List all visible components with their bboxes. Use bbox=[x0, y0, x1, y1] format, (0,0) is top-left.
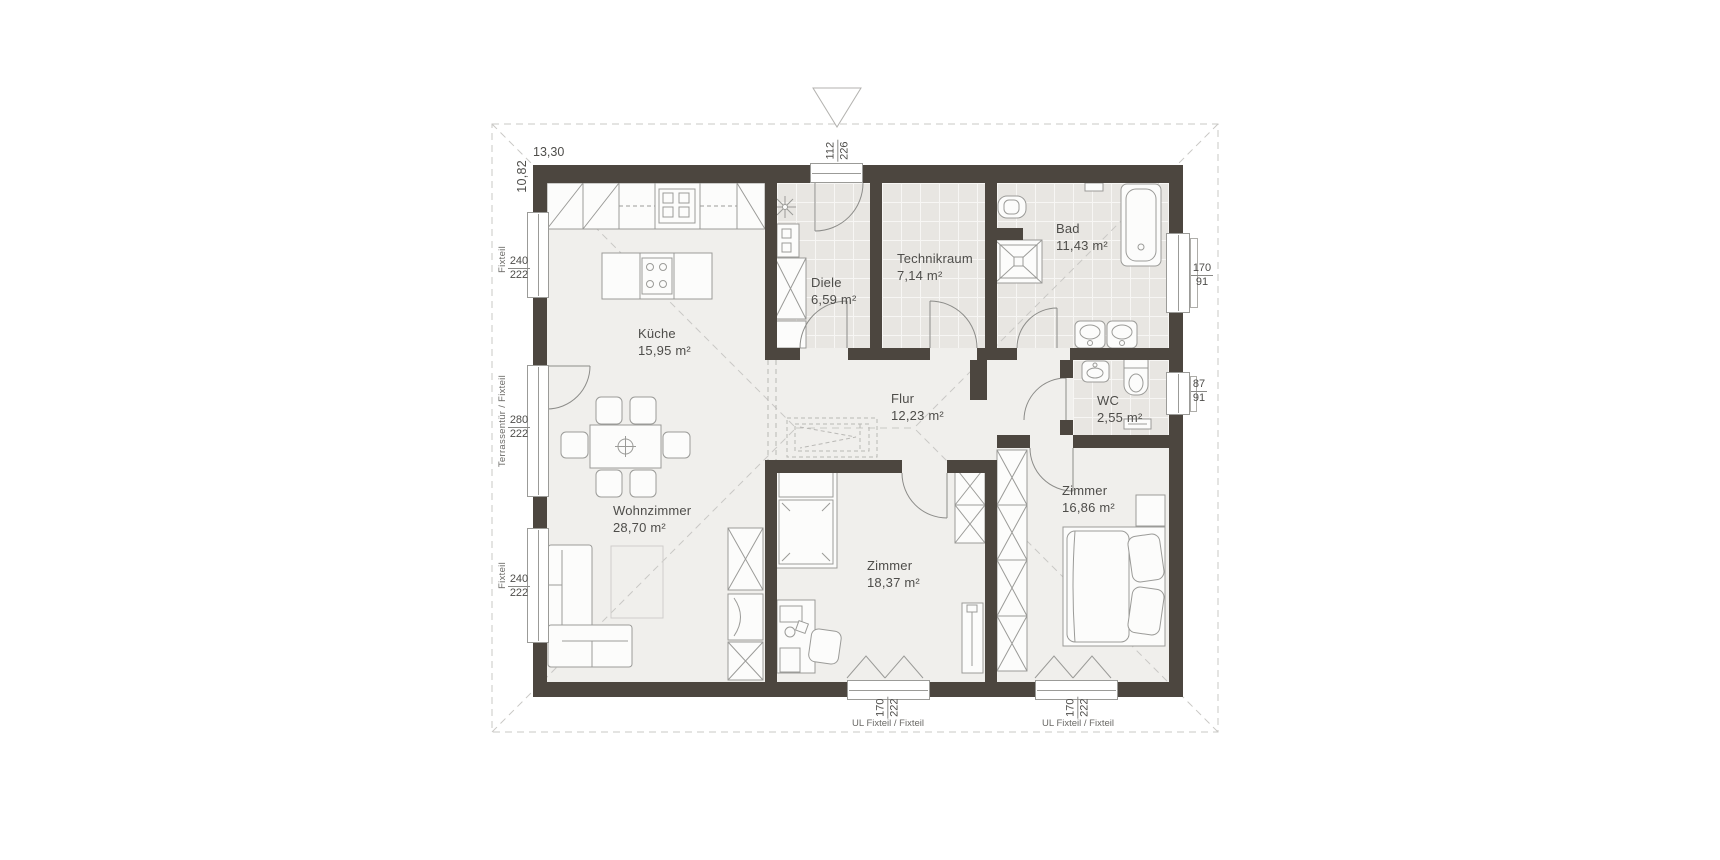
room-label-wc: WC 2,55 m² bbox=[1097, 393, 1142, 426]
double-bed bbox=[1063, 527, 1165, 646]
technikraum-door-swing bbox=[930, 301, 977, 348]
wall bbox=[765, 183, 777, 360]
room-area: 12,23 m² bbox=[891, 408, 944, 425]
room-area: 11,43 m² bbox=[1056, 238, 1108, 255]
room-label-flur: Flur 12,23 m² bbox=[891, 391, 944, 424]
dim-total-depth: 10,82 bbox=[515, 160, 529, 193]
dim-height: 222 bbox=[504, 269, 534, 282]
kitchen-counter bbox=[547, 183, 765, 229]
room-label-wohnzimmer: Wohnzimmer 28,70 m² bbox=[613, 503, 691, 536]
desk bbox=[777, 600, 815, 673]
shoe-cabinet bbox=[777, 224, 799, 257]
bath-shelf bbox=[1085, 183, 1103, 191]
wall bbox=[977, 348, 1017, 360]
room-label-zimmer-18: Zimmer 18,37 m² bbox=[867, 558, 920, 591]
room-name: Zimmer bbox=[867, 558, 920, 575]
shower bbox=[995, 240, 1042, 283]
room-area: 2,55 m² bbox=[1097, 410, 1142, 427]
zimmer16-wardrobe bbox=[997, 450, 1027, 671]
dim-height: 222 bbox=[504, 428, 534, 441]
wall bbox=[997, 228, 1023, 240]
window-type-label: UL Fixteil / Fixteil bbox=[1023, 718, 1133, 729]
zimmer18-door-swing bbox=[902, 473, 947, 518]
dim-width: 240 bbox=[508, 573, 530, 587]
terrace-door-swing bbox=[547, 366, 590, 409]
wall bbox=[930, 682, 1035, 697]
room-area: 15,95 m² bbox=[638, 343, 691, 360]
dim-height: 226 bbox=[839, 136, 852, 166]
wall bbox=[1169, 183, 1183, 233]
wall bbox=[870, 183, 882, 348]
room-label-diele: Diele 6,59 m² bbox=[811, 275, 856, 308]
wall bbox=[533, 183, 547, 212]
desk-chair bbox=[808, 628, 842, 665]
wall bbox=[1118, 682, 1183, 697]
entry-door-opening bbox=[810, 163, 863, 183]
room-name: WC bbox=[1097, 393, 1142, 410]
wall bbox=[1070, 348, 1183, 360]
single-bed bbox=[775, 468, 837, 568]
dim-entry-door: 112 226 bbox=[824, 136, 851, 166]
room-name: Wohnzimmer bbox=[613, 503, 691, 520]
room-name: Technikraum bbox=[897, 251, 973, 268]
wall bbox=[863, 165, 1183, 183]
wall bbox=[765, 460, 902, 473]
zimmer18-wardrobe bbox=[955, 467, 985, 543]
wall bbox=[1060, 360, 1073, 378]
wc-sink bbox=[1082, 361, 1109, 382]
double-washbasin bbox=[1075, 321, 1137, 348]
wall bbox=[533, 298, 547, 365]
living-wall-units bbox=[728, 528, 763, 680]
dining-table-set bbox=[561, 397, 690, 497]
dim-width: 170 bbox=[1064, 697, 1078, 719]
wall bbox=[533, 497, 547, 528]
dim-window-right-wc: 87 91 bbox=[1184, 378, 1214, 405]
wall bbox=[1169, 313, 1183, 372]
dim-window-right-bad: 170 91 bbox=[1187, 262, 1217, 289]
kitchen-island bbox=[602, 253, 712, 299]
wall bbox=[533, 682, 847, 697]
window-type-label: UL Fixteil / Fixteil bbox=[833, 718, 943, 729]
dim-width: 170 bbox=[1191, 262, 1213, 276]
dim-total-width: 13,30 bbox=[533, 145, 564, 159]
room-name: Bad bbox=[1056, 221, 1108, 238]
room-label-kueche: Küche 15,95 m² bbox=[638, 326, 691, 359]
wall bbox=[1060, 420, 1073, 435]
wall bbox=[997, 435, 1030, 448]
wall bbox=[985, 460, 997, 682]
room-area: 6,59 m² bbox=[811, 292, 856, 309]
dim-width: 240 bbox=[508, 255, 530, 269]
dim-width: 280 bbox=[508, 414, 530, 428]
nightstand bbox=[1136, 495, 1165, 526]
dim-width: 112 bbox=[824, 140, 838, 162]
entry-door-swing bbox=[815, 183, 863, 231]
wall bbox=[985, 183, 997, 348]
wall bbox=[970, 360, 987, 400]
dim-window-left-3: 240 222 bbox=[504, 573, 534, 600]
wall bbox=[765, 460, 777, 682]
wall bbox=[765, 348, 800, 360]
dim-height: 91 bbox=[1187, 276, 1217, 289]
wall bbox=[1073, 435, 1169, 448]
room-area: 28,70 m² bbox=[613, 520, 691, 537]
room-name: Diele bbox=[811, 275, 856, 292]
room-name: Zimmer bbox=[1062, 483, 1115, 500]
wall bbox=[1169, 415, 1183, 682]
bad-door-swing bbox=[1017, 308, 1057, 348]
wc-toilet bbox=[1124, 359, 1148, 395]
room-name: Küche bbox=[638, 326, 691, 343]
dim-height: 222 bbox=[504, 587, 534, 600]
room-area: 18,37 m² bbox=[867, 575, 920, 592]
room-label-technikraum: Technikraum 7,14 m² bbox=[897, 251, 973, 284]
dim-window-left-1: 240 222 bbox=[504, 255, 534, 282]
coat-rack-icon bbox=[774, 196, 796, 218]
dim-window-left-terrace: 280 222 bbox=[504, 414, 534, 441]
rug bbox=[611, 546, 663, 618]
dim-width: 87 bbox=[1191, 378, 1207, 392]
zimmer18-sideboard bbox=[962, 603, 983, 673]
dim-height: 91 bbox=[1184, 392, 1214, 405]
sofa bbox=[548, 545, 632, 667]
floor-plan: Küche 15,95 m² Wohnzimmer 28,70 m² Diele… bbox=[0, 0, 1720, 860]
bathtub bbox=[1121, 184, 1161, 266]
wc-door-swing bbox=[1024, 378, 1066, 420]
wall bbox=[848, 348, 930, 360]
furniture-layer bbox=[0, 0, 1720, 860]
wall bbox=[533, 165, 810, 183]
room-area: 7,14 m² bbox=[897, 268, 973, 285]
room-area: 16,86 m² bbox=[1062, 500, 1115, 517]
room-name: Flur bbox=[891, 391, 944, 408]
bad-toilet bbox=[998, 196, 1026, 218]
dim-width: 170 bbox=[874, 697, 888, 719]
room-label-bad: Bad 11,43 m² bbox=[1056, 221, 1108, 254]
room-label-zimmer-16: Zimmer 16,86 m² bbox=[1062, 483, 1115, 516]
